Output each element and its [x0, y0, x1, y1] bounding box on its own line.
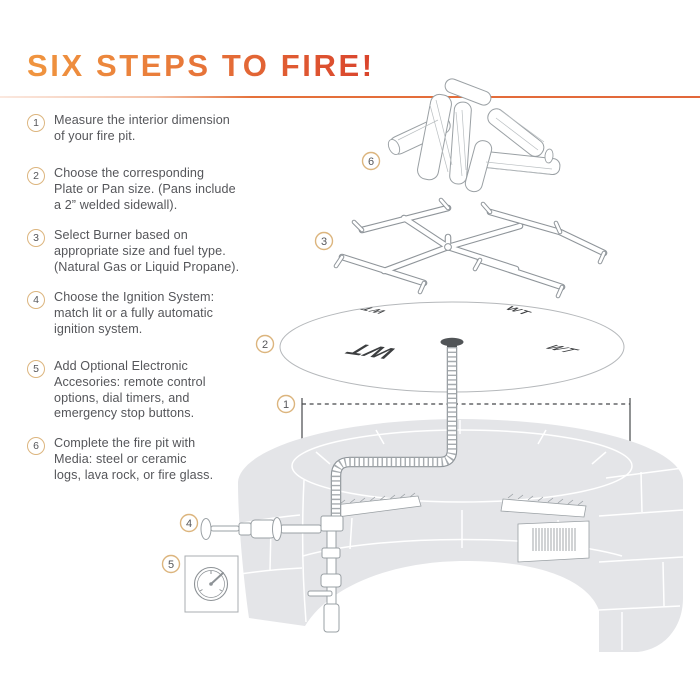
- badge-number: 4: [186, 518, 192, 530]
- diagram-badge-6: 6: [363, 153, 380, 170]
- badge-number: 5: [168, 559, 174, 571]
- diagram-badge-1: 1: [278, 396, 295, 413]
- fire-pit-exploded-diagram: WT WT WT WT: [0, 0, 700, 700]
- badge-number: 3: [321, 236, 327, 248]
- valve-key-handle: [201, 519, 211, 540]
- timer-illustration: [185, 556, 238, 612]
- badge-number: 2: [262, 339, 268, 351]
- badge-number: 1: [283, 399, 289, 411]
- diagram-badge-5: 5: [163, 556, 180, 573]
- diagram-badge-4: 4: [181, 515, 198, 532]
- fire-pit-illustration: [238, 419, 683, 652]
- badge-number: 6: [368, 156, 374, 168]
- diagram-badge-2: 2: [257, 336, 274, 353]
- valve-body: [251, 520, 275, 538]
- vent-grille: [518, 521, 589, 562]
- pipe-stub: [308, 591, 332, 596]
- burner-illustration: [336, 200, 604, 296]
- diagram-badge-3: 3: [316, 233, 333, 250]
- logs-illustration: [386, 77, 561, 194]
- infographic-page: SIX STEPS TO FIRE! 1 Measure the interio…: [0, 0, 700, 700]
